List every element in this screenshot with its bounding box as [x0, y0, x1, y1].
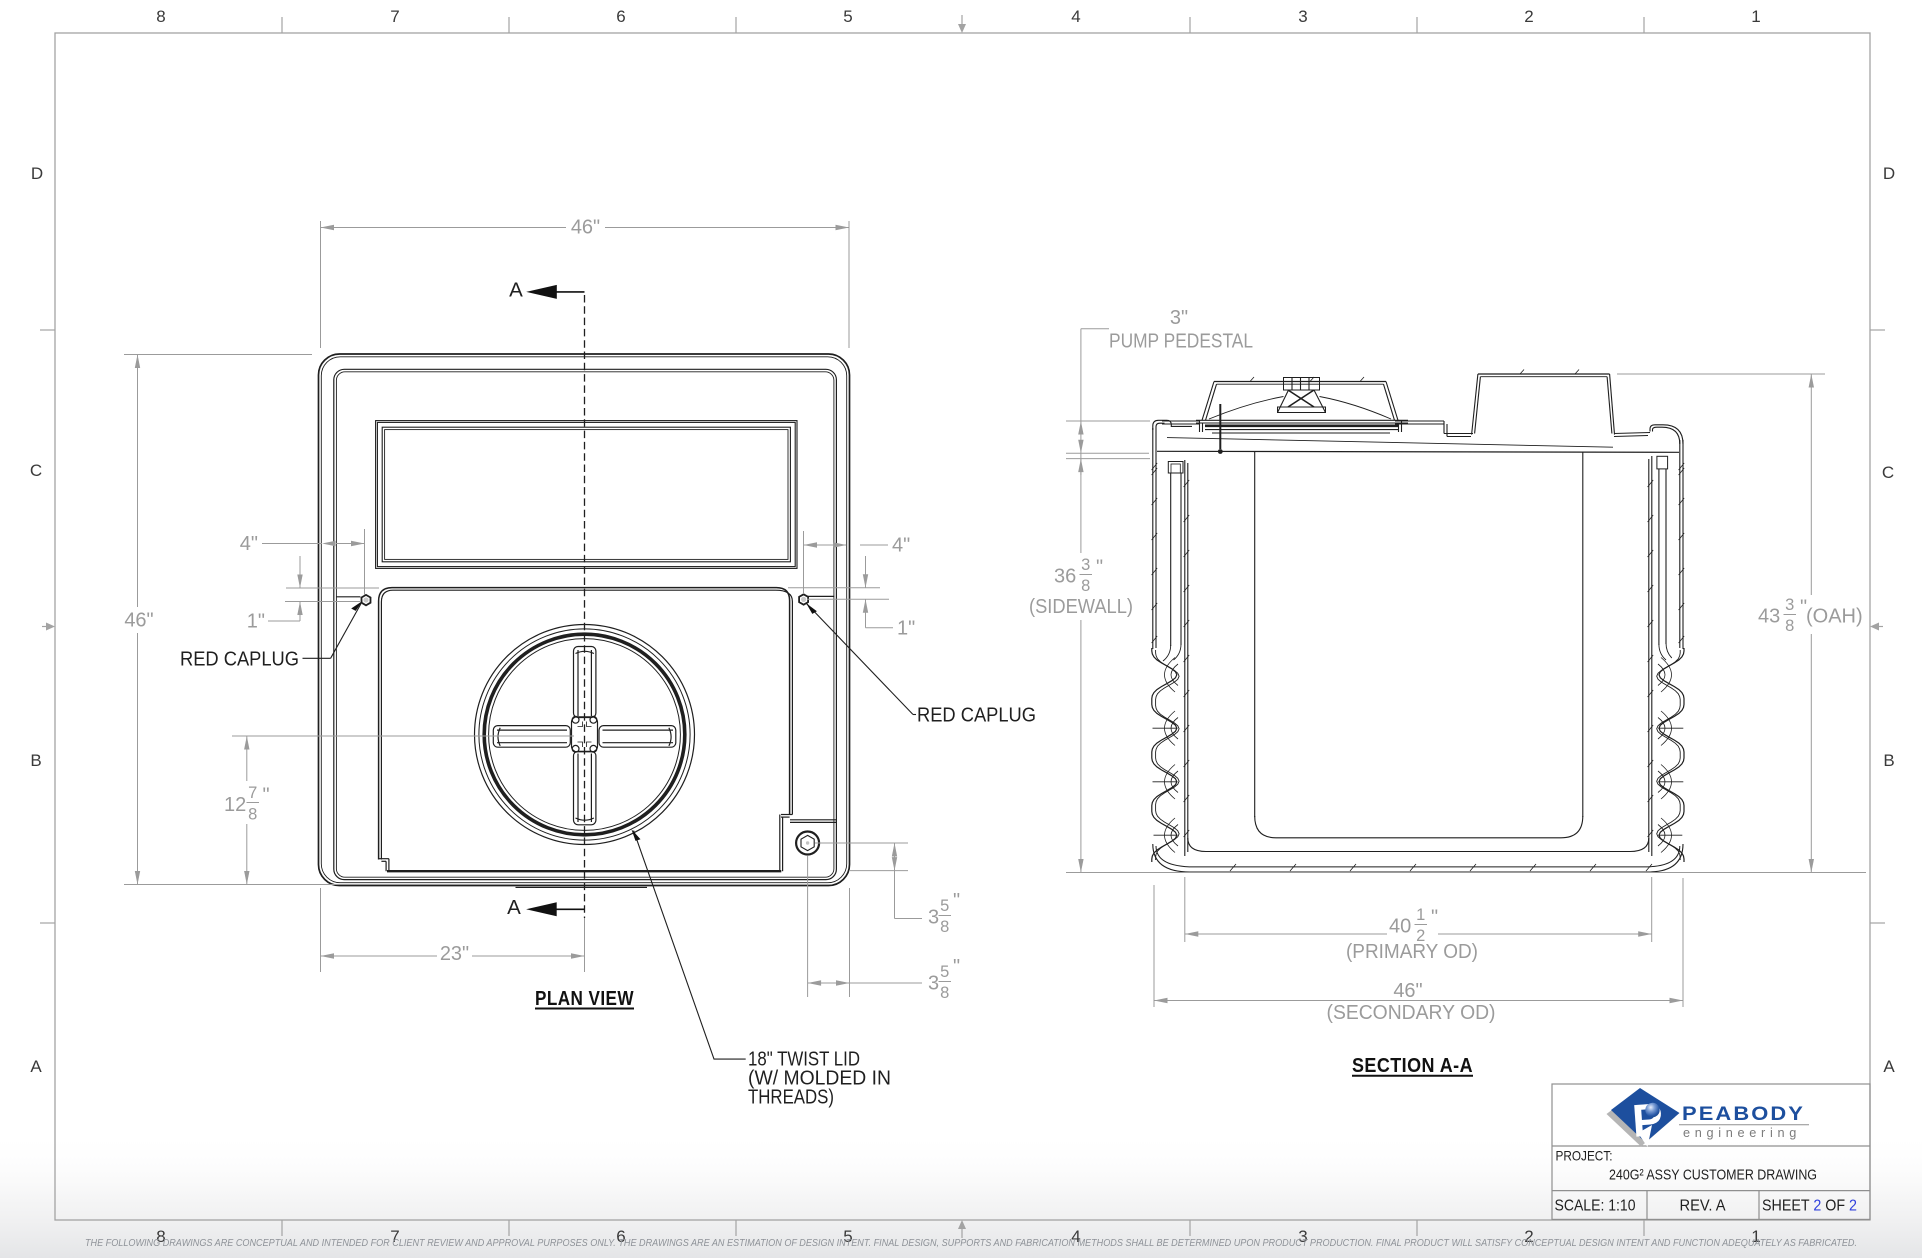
svg-text:": " — [1096, 557, 1103, 579]
svg-text:8: 8 — [248, 805, 257, 823]
svg-text:": " — [1431, 907, 1438, 929]
svg-text:6: 6 — [616, 7, 625, 26]
svg-text:A: A — [1883, 1057, 1895, 1076]
svg-text:5: 5 — [940, 963, 949, 981]
svg-text:D: D — [1883, 164, 1895, 183]
svg-text:(PRIMARY OD): (PRIMARY OD) — [1346, 941, 1478, 963]
svg-text:40: 40 — [1389, 916, 1411, 938]
svg-text:THE FOLLOWING DRAWINGS ARE CON: THE FOLLOWING DRAWINGS ARE CONCEPTUAL AN… — [85, 1238, 1857, 1249]
svg-text:A: A — [509, 279, 523, 302]
svg-text:engineering: engineering — [1683, 1126, 1801, 1140]
svg-text:5: 5 — [940, 897, 949, 915]
svg-text:PLAN VIEW: PLAN VIEW — [535, 988, 634, 1010]
svg-text:12: 12 — [224, 794, 246, 816]
svg-text:240G² ASSY CUSTOMER DRAWING: 240G² ASSY CUSTOMER DRAWING — [1609, 1167, 1817, 1184]
svg-text:1": 1" — [897, 618, 915, 640]
svg-text:D: D — [31, 164, 43, 183]
svg-text:1: 1 — [1751, 7, 1760, 26]
svg-text:3: 3 — [928, 973, 939, 995]
svg-text:B: B — [30, 751, 41, 770]
svg-text:": " — [953, 956, 960, 978]
svg-text:REV. A: REV. A — [1680, 1198, 1727, 1215]
svg-text:PEABODY: PEABODY — [1682, 1104, 1805, 1125]
svg-text:46": 46" — [124, 610, 153, 632]
svg-text:46": 46" — [571, 217, 600, 239]
svg-text:(SECONDARY OD): (SECONDARY OD) — [1327, 1002, 1496, 1024]
svg-text:36: 36 — [1054, 566, 1076, 588]
svg-text:RED CAPLUG: RED CAPLUG — [180, 648, 299, 671]
svg-text:8: 8 — [940, 918, 949, 936]
svg-text:8: 8 — [940, 984, 949, 1002]
svg-text:B: B — [1883, 751, 1894, 770]
svg-text:SHEET 2 OF 2: SHEET 2 OF 2 — [1762, 1198, 1857, 1215]
svg-text:SECTION A-A: SECTION A-A — [1352, 1055, 1473, 1077]
svg-text:PUMP PEDESTAL: PUMP PEDESTAL — [1109, 331, 1253, 353]
svg-text:SCALE: 1:10: SCALE: 1:10 — [1555, 1198, 1636, 1215]
svg-text:C: C — [1882, 463, 1894, 482]
svg-text:THREADS): THREADS) — [748, 1086, 834, 1109]
svg-text:A: A — [30, 1057, 42, 1076]
svg-text:2: 2 — [1524, 7, 1533, 26]
svg-text:4": 4" — [240, 533, 258, 555]
svg-text:3: 3 — [1298, 7, 1307, 26]
svg-text:": " — [953, 890, 960, 912]
svg-text:PROJECT:: PROJECT: — [1556, 1149, 1613, 1164]
svg-text:1": 1" — [247, 611, 265, 633]
svg-text:1: 1 — [1416, 906, 1425, 924]
svg-text:8: 8 — [1785, 617, 1794, 635]
svg-text:4: 4 — [1071, 7, 1080, 26]
svg-text:7: 7 — [390, 7, 399, 26]
svg-text:7: 7 — [248, 784, 257, 802]
svg-text:43: 43 — [1758, 606, 1780, 628]
svg-text:46": 46" — [1393, 980, 1422, 1002]
svg-text:5: 5 — [843, 7, 852, 26]
svg-text:C: C — [30, 461, 42, 480]
svg-text:": " — [263, 785, 270, 807]
svg-text:RED CAPLUG: RED CAPLUG — [917, 704, 1036, 727]
svg-text:A: A — [507, 896, 521, 919]
svg-text:(SIDEWALL): (SIDEWALL) — [1029, 596, 1133, 618]
svg-text:3": 3" — [1170, 307, 1188, 329]
svg-text:23": 23" — [440, 943, 469, 965]
svg-text:8: 8 — [1081, 577, 1090, 595]
svg-text:3: 3 — [1785, 596, 1794, 614]
svg-text:4": 4" — [892, 535, 910, 557]
svg-text:3: 3 — [928, 907, 939, 929]
svg-text:8: 8 — [156, 7, 165, 26]
svg-text:3: 3 — [1081, 556, 1090, 574]
svg-text:(OAH): (OAH) — [1806, 606, 1863, 628]
